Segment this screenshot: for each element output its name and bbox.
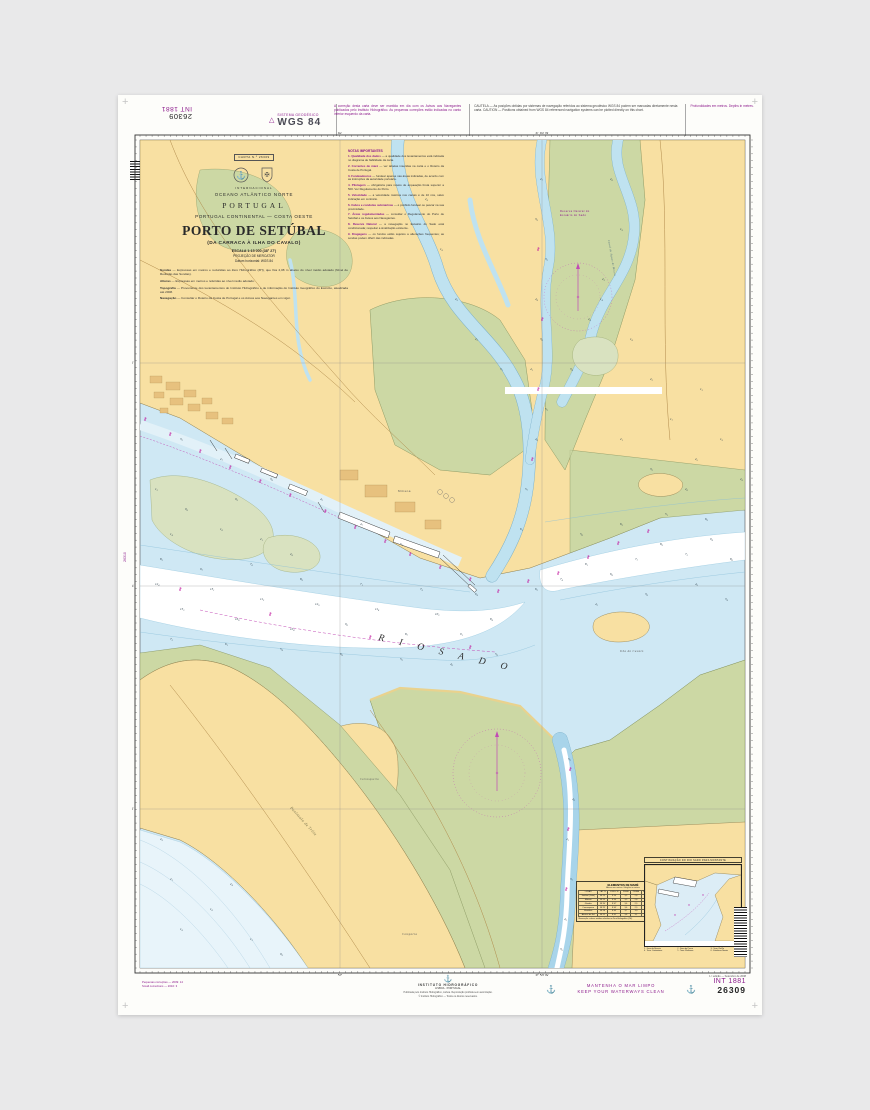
intl-label: INTERNACIONAL	[160, 186, 348, 190]
registration-cross: +	[122, 97, 128, 107]
svg-text:Reserva Natural do: Reserva Natural do	[560, 209, 590, 213]
note-item: 5. Velocidade — a velocidade máxima nos …	[348, 194, 444, 202]
barcode	[734, 907, 747, 957]
svg-text:Ilha do Cavalo: Ilha do Cavalo	[619, 649, 644, 653]
note-item: 4. Pilotagem — obrigatória para navios d…	[348, 184, 444, 192]
svg-text:52': 52'	[338, 132, 343, 135]
svg-text:Estuário do Sado: Estuário do Sado	[560, 213, 586, 217]
note-item: 1. Qualidade dos dados — a qualidade dos…	[348, 155, 444, 163]
small-corrections: Pequenas correções — 2009: 14 Small corr…	[142, 981, 183, 989]
title-paragraph: Navegação — Consultar o Roteiro da Costa…	[160, 296, 348, 300]
clean-sea-notice: ⚓ MANTENHA O MAR LIMPO KEEP YOUR WATERWA…	[546, 983, 696, 996]
chart-number: 26309	[132, 112, 192, 121]
inset-plan: CONTINUAÇÃO DO RIO SADO PARA MONTANTE 1 …	[644, 857, 742, 953]
svg-text:8° 50' W: 8° 50' W	[536, 974, 550, 977]
national-crest-icon: ✠	[259, 166, 275, 184]
int-number: INT 1881	[709, 978, 746, 985]
inset-legend: 1 · Doca de Recreio2 · Doca de Pesca3 · …	[644, 948, 742, 953]
clean-sea-en: KEEP YOUR WATERWAYS CLEAN	[561, 989, 681, 995]
inset-map-drawing	[645, 865, 741, 941]
adjoining-chart-number: 26310	[123, 552, 127, 562]
title-paragraph: Topografia — Proveniente dos levantament…	[160, 286, 348, 294]
chart-datum: Datum horizontal: WGS 84	[160, 259, 348, 263]
chart-number: 26309	[709, 985, 746, 995]
small-corrections-line2: Small corrections — 2010: 3	[142, 985, 183, 989]
publisher-imprint: Publicada pelo Instituto Hidrográfico, L…	[368, 991, 528, 994]
title-paragraph: Sondas — Expressas em metros e reduzidas…	[160, 268, 348, 276]
wgs84-label: WGS 84	[277, 117, 321, 128]
publisher-crest-icon: ⚓	[368, 975, 528, 983]
svg-text:⚓: ⚓	[236, 170, 246, 180]
photo-backdrop: { "margins": { "top_left_chart_no": "263…	[0, 0, 870, 1110]
note-item: 2. Correntes de maré — ver tabelas inser…	[348, 165, 444, 173]
chart-sheet: + + + + 26309 INT 1881 26310 △ SISTEMA G…	[118, 95, 762, 1015]
anchor-icon: ⚓	[546, 985, 556, 994]
ocean-label: OCEANO ATLÂNTICO NORTE	[160, 192, 348, 197]
chart-number-box: CARTA N.º 26309	[234, 154, 273, 161]
note-item: 6. Cabos e condutas submarinas — é proib…	[348, 204, 444, 212]
publisher-block: ⚓ INSTITUTO HIDROGRÁFICO LISBOA · PORTUG…	[368, 975, 528, 998]
chart-scale: ESCALA 1:15 000 (38° 27')	[160, 249, 348, 253]
svg-text:✠: ✠	[264, 172, 269, 179]
note-item: 9. Dragagens — os fundos estão sujeitos …	[348, 233, 444, 241]
svg-text:Comporta: Comporta	[402, 932, 417, 936]
geodetic-label: SISTEMA GEODÉSICO	[277, 113, 321, 117]
note-item: 8. Reserva Natural — a navegação no Estu…	[348, 223, 444, 231]
chart-projection: PROJEÇÃO DE MERCATOR	[160, 254, 348, 258]
inset-legend-item: 4 · Term. Contentores	[644, 950, 675, 953]
triangle-icon: △	[269, 116, 274, 124]
title-block: CARTA N.º 26309 ⚓ ✠ INTERNACIONAL OCEANO…	[160, 145, 348, 303]
anchor-icon: ⚓	[686, 985, 696, 994]
svg-text:28': 28'	[132, 807, 134, 811]
int-number: INT 1881	[132, 105, 192, 112]
inset-legend-item: 5 · Term. Multiusos	[677, 950, 708, 953]
inset-title: CONTINUAÇÃO DO RIO SADO PARA MONTANTE	[644, 857, 742, 863]
svg-text:38° 29' N: 38° 29' N	[132, 584, 134, 588]
chart-title: PORTO DE SETÚBAL	[160, 223, 348, 239]
notes-heading: NOTAS IMPORTANTES	[348, 149, 444, 153]
note-item: 3. Fundeadouros — fundear apenas nas áre…	[348, 175, 444, 183]
region-label: PORTUGAL CONTINENTAL — COSTA OESTE	[160, 214, 348, 219]
registration-cross: +	[752, 1001, 758, 1011]
svg-text:Carrasqueira: Carrasqueira	[360, 778, 379, 781]
svg-text:52': 52'	[338, 974, 343, 977]
svg-text:8° 50' W: 8° 50' W	[536, 132, 550, 135]
svg-text:Mitrena: Mitrena	[398, 489, 411, 493]
title-paragraphs: Sondas — Expressas em metros e reduzidas…	[160, 268, 348, 301]
registration-cross: +	[122, 1001, 128, 1011]
chart-number-rotated: 26309 INT 1881	[132, 105, 192, 121]
crests: ⚓ ✠	[160, 166, 348, 184]
note-item: 7. Áreas regulamentadas — consultar o Re…	[348, 213, 444, 221]
svg-text:30': 30'	[132, 361, 134, 365]
country-label: PORTUGAL	[160, 201, 348, 210]
chart-subtitle: (DA CARRACA À ILHA DO CAVALO)	[160, 241, 348, 246]
inset-map	[644, 864, 742, 947]
hydrographic-crest-icon: ⚓	[233, 166, 249, 184]
edition-block: 1.ª edição — Setembro de 2008 INT 1881 2…	[709, 975, 746, 995]
notes-column: NOTAS IMPORTANTES 1. Qualidade dos dados…	[348, 149, 444, 243]
publisher-copyright: © Instituto Hidrográfico — Todos os dire…	[368, 995, 528, 998]
publisher-city: LISBOA · PORTUGAL	[368, 987, 528, 990]
title-paragraph: Alturas — Expressas em metros e referida…	[160, 279, 348, 283]
correction-patch	[505, 387, 662, 394]
